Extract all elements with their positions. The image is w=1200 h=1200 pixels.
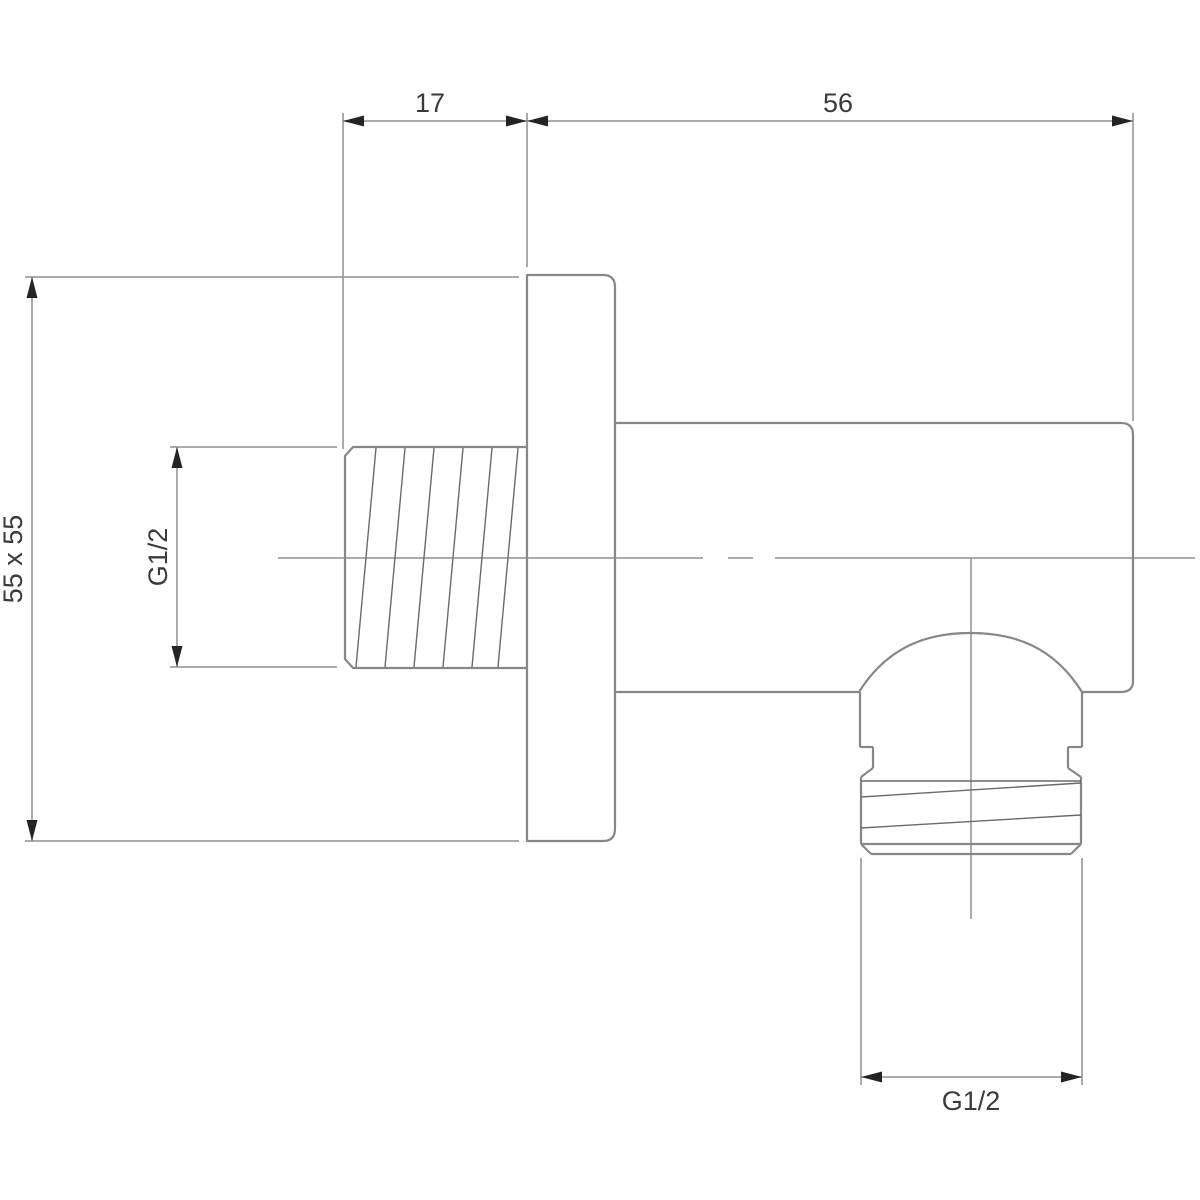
dim-label-55x55: 55 x 55 [0,515,28,604]
dimension-rear-thread: G1/2 [143,447,337,667]
dim-label-g12-rear: G1/2 [143,528,173,587]
arrowhead-top [172,447,183,468]
arrowhead-left [527,116,548,127]
drawing-canvas: 17 56 55 x 55 G1/2 G1/2 [0,0,1200,1200]
dim-label-56: 56 [823,88,853,118]
dim-label-17: 17 [415,88,445,118]
arrowhead-right [506,116,527,127]
arrowhead-right [1112,116,1133,127]
arrowhead-bottom [172,646,183,667]
arrowhead-bottom [27,820,38,841]
dimension-plate-size: 55 x 55 [0,277,519,841]
elbow-dimension-drawing: 17 56 55 x 55 G1/2 G1/2 [0,0,1200,1200]
dim-label-g12-bottom: G1/2 [942,1086,1001,1116]
arrowhead-left [343,116,364,127]
arrowhead-top [27,277,38,298]
arrowhead-left [861,1072,882,1083]
dimension-projection: 56 [527,88,1133,421]
arrowhead-right [1061,1072,1082,1083]
dimension-nipple-length: 17 [343,88,527,449]
